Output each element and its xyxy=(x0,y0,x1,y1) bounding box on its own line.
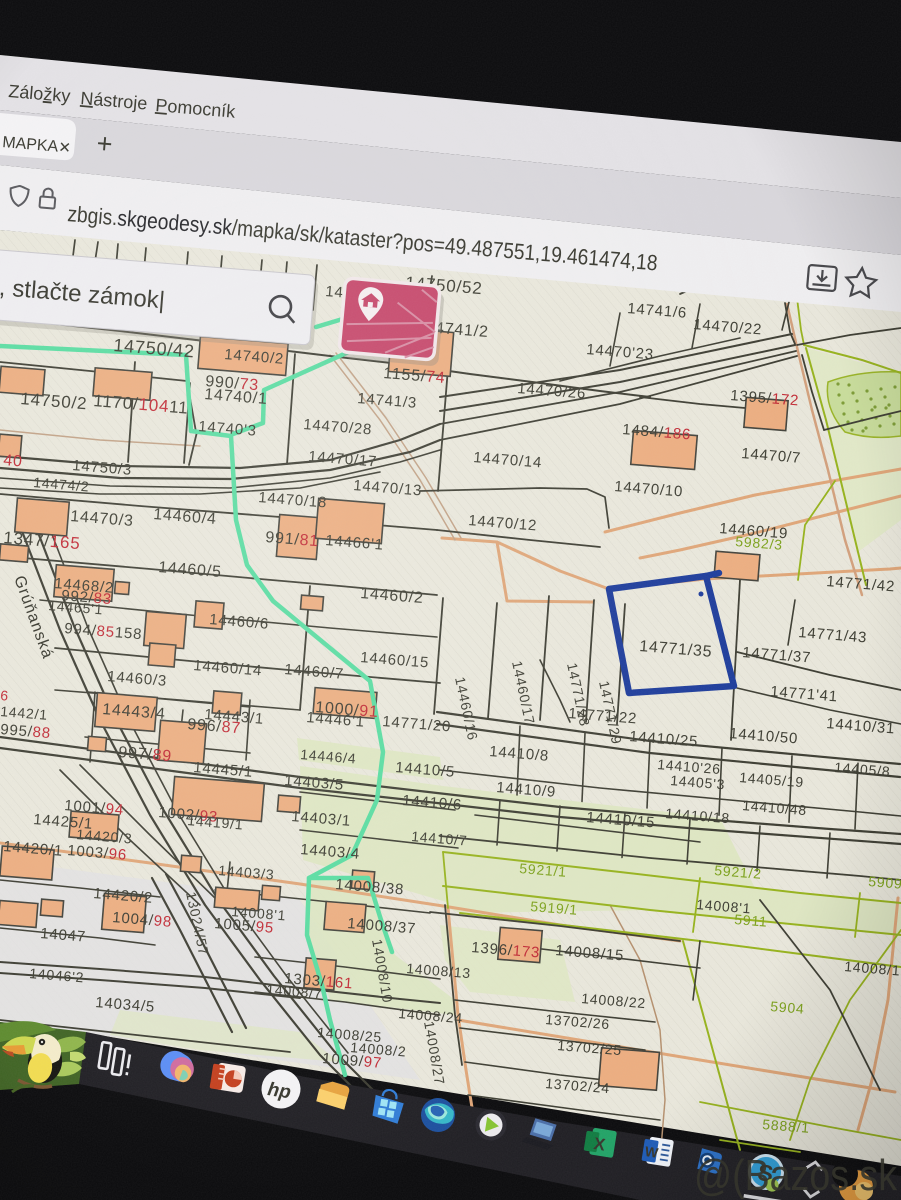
svg-text:@(Bazos.sk: @(Bazos.sk xyxy=(694,1151,898,1200)
